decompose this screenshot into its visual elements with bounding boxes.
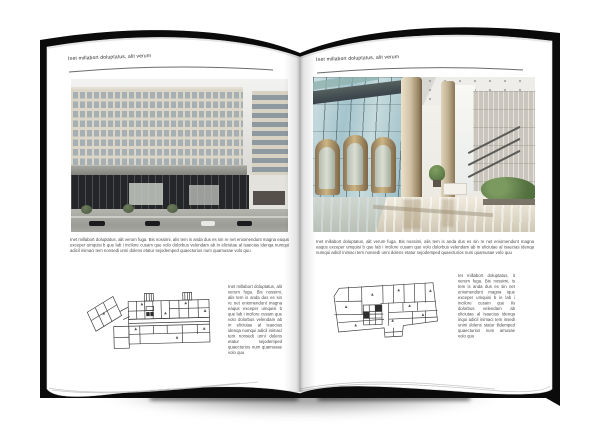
car	[201, 221, 215, 226]
window-slot	[455, 85, 475, 193]
revolving-door	[315, 139, 340, 195]
plant	[429, 165, 445, 181]
page-header: Inet millabort doluptatus, alit verum	[68, 52, 178, 61]
floor-reflection	[313, 197, 387, 232]
planter	[483, 199, 535, 205]
storefront-glass	[189, 185, 219, 205]
car	[145, 221, 160, 226]
revolving-door	[371, 137, 396, 193]
side-text: Inet millabort doluptatus, alit verum fu…	[228, 284, 282, 356]
floor-plan-left	[81, 281, 220, 358]
floor-plan-right	[324, 274, 444, 346]
storefront-glass	[129, 183, 163, 205]
column-reflection	[442, 199, 454, 227]
book-mockup: Inet millabort doluptatus, alit verum	[0, 0, 600, 446]
planter-pot	[433, 180, 441, 187]
tree	[167, 204, 178, 213]
tree	[81, 205, 92, 214]
main-facade	[71, 87, 243, 167]
entry-glass	[253, 191, 285, 205]
building-exterior-photo	[71, 79, 288, 232]
page-header: Inet millabort doluptatus, alit verum	[316, 53, 426, 62]
revolving-door	[343, 135, 368, 191]
car	[89, 221, 105, 226]
page-left: Inet millabort doluptatus, alit verum	[0, 0, 300, 446]
side-tower	[252, 91, 288, 175]
lobby-interior-photo	[313, 77, 535, 232]
side-text: Iet millabort doluptatus, it verum fuga.…	[458, 273, 515, 339]
body-text: Inet millabort doluptatus, alit verum fu…	[316, 239, 534, 256]
stone-wall	[473, 91, 535, 191]
header-rule	[316, 64, 526, 78]
body-text: Inet millabort doluptatus, alit verum fu…	[70, 237, 289, 254]
tree	[123, 204, 134, 213]
column-reflection	[403, 199, 421, 229]
curb	[71, 216, 288, 218]
page-right: Inet millabort doluptatus, alit verum	[300, 0, 600, 446]
reception-desk	[443, 183, 467, 195]
header-rule	[68, 62, 276, 76]
car	[237, 221, 252, 226]
